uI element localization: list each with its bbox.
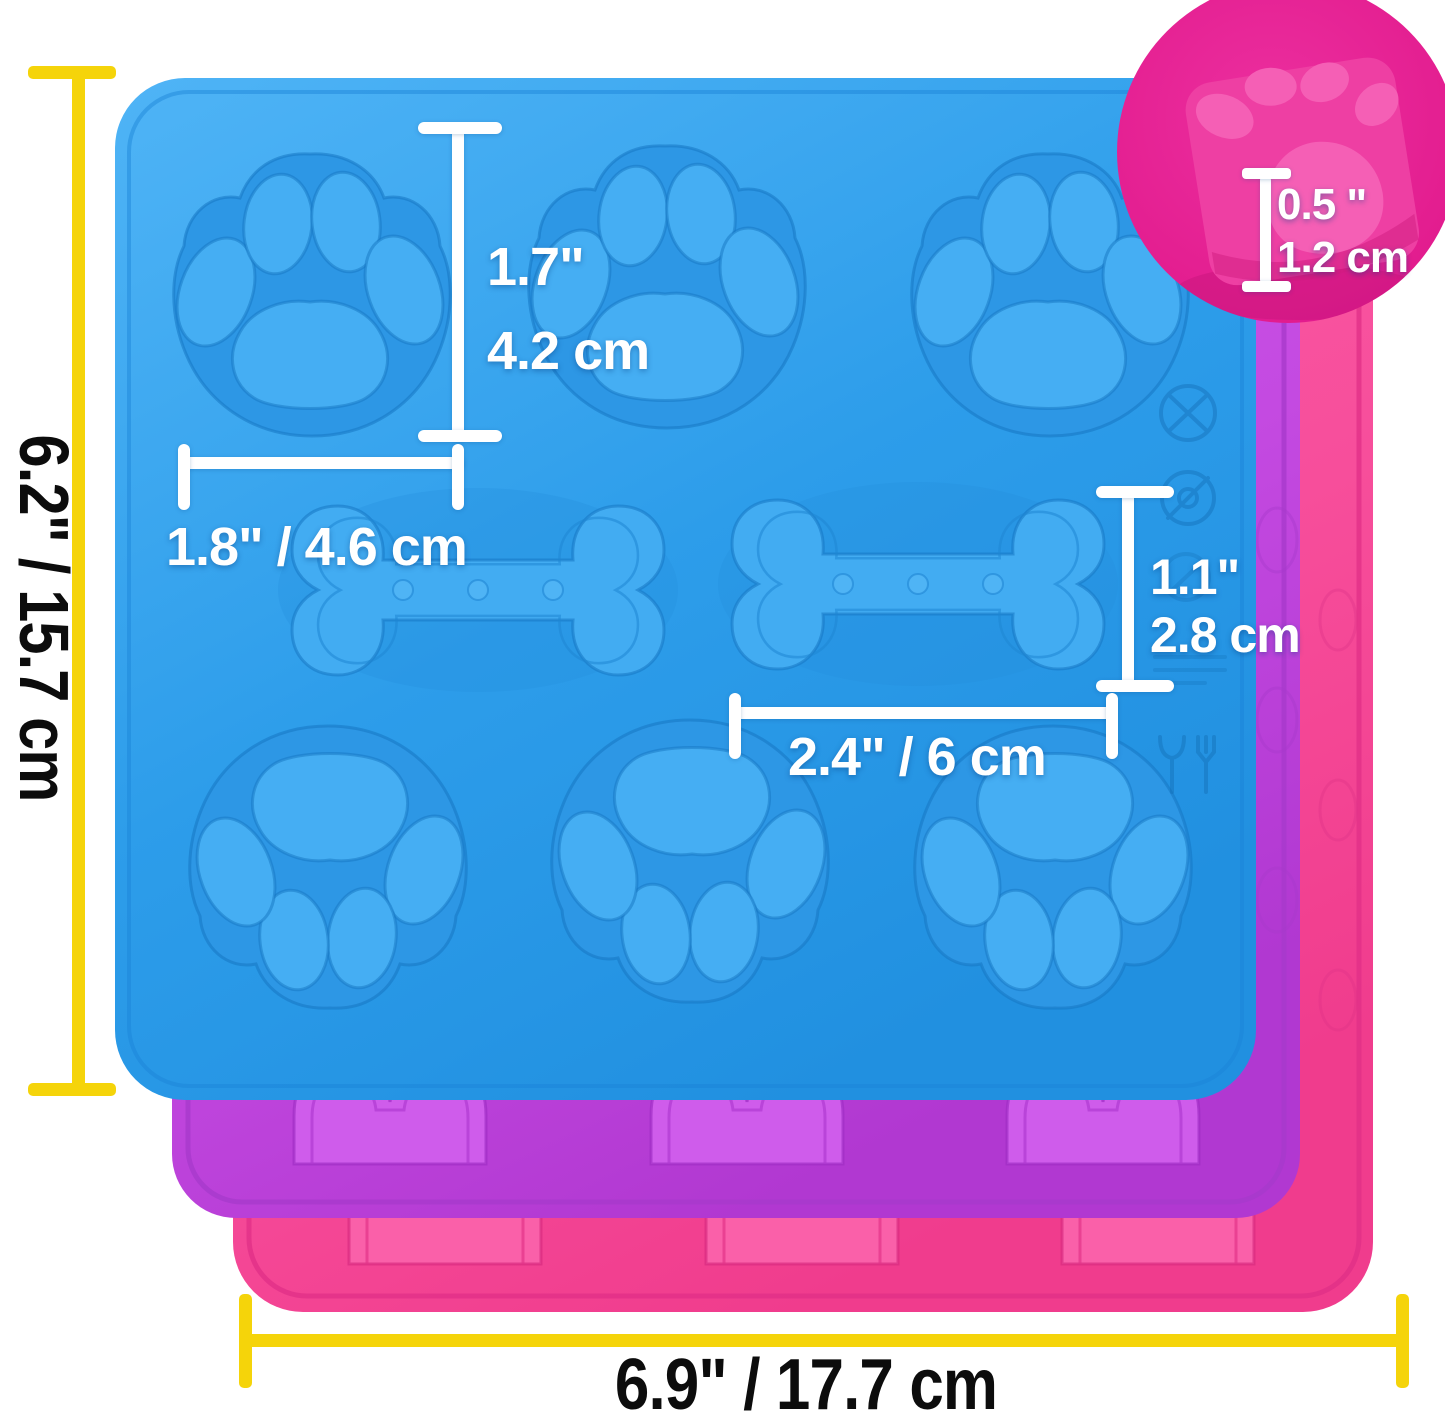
- mold-depth-cap-bottom: [1242, 281, 1291, 292]
- bone-width-cap-right: [1106, 693, 1118, 759]
- overall-height-cap-top: [28, 66, 116, 79]
- paw-height-cm-label: 4.2 cm: [487, 324, 649, 378]
- bone-height-line: [1122, 490, 1134, 688]
- paw-width-cap-left: [178, 444, 190, 510]
- bone-height-cm-label: 2.8 cm: [1150, 610, 1300, 660]
- paw-height-inches-label: 1.7": [487, 240, 584, 294]
- product-dimension-diagram: 6.2" / 15.7 cm 6.9" / 17.7 cm 1.7" 4.2 c…: [0, 0, 1445, 1421]
- mold-depth-inches-label: 0.5 ": [1277, 183, 1366, 227]
- mold-depth-cm-label: 1.2 cm: [1277, 236, 1408, 280]
- overall-width-cap-right: [1396, 1294, 1409, 1388]
- molds-illustration: [0, 0, 1445, 1421]
- overall-width-label: 6.9" / 17.7 cm: [615, 1349, 997, 1421]
- bone-height-cap-top: [1096, 486, 1174, 498]
- bone-height-inches-label: 1.1": [1150, 552, 1239, 602]
- bone-width-label: 2.4" / 6 cm: [788, 730, 1046, 784]
- paw-height-cap-bottom: [418, 430, 502, 442]
- overall-width-cap-left: [239, 1294, 252, 1388]
- mold-depth-line: [1260, 176, 1271, 284]
- paw-height-cap-top: [418, 122, 502, 134]
- overall-height-label: 6.2" / 15.7 cm: [9, 435, 79, 802]
- bone-width-cap-left: [729, 693, 741, 759]
- bone-cavity: [718, 482, 1118, 686]
- bone-width-line: [735, 707, 1114, 719]
- bone-height-cap-bottom: [1096, 680, 1174, 692]
- paw-width-label: 1.8" / 4.6 cm: [166, 520, 467, 574]
- paw-width-cap-right: [452, 444, 464, 510]
- front-mold-blue: [115, 78, 1256, 1100]
- paw-height-line: [452, 126, 464, 440]
- mold-depth-cap-top: [1242, 168, 1291, 179]
- paw-width-line: [183, 457, 464, 469]
- overall-height-cap-bottom: [28, 1083, 116, 1096]
